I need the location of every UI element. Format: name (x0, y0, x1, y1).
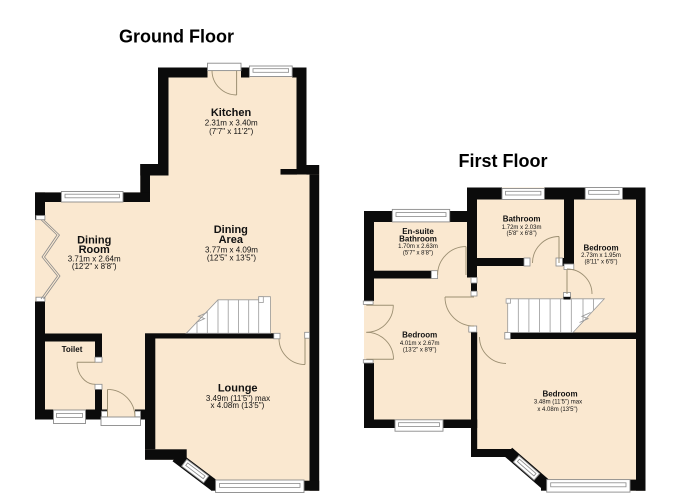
svg-text:Ground Floor: Ground Floor (119, 27, 234, 47)
svg-text:(5'8" x 6'8"): (5'8" x 6'8") (506, 231, 536, 237)
svg-text:Bathroom: Bathroom (503, 214, 541, 223)
svg-text:First Floor: First Floor (459, 151, 548, 171)
svg-text:Lounge: Lounge (218, 383, 258, 395)
svg-text:2.73m x 1.95m: 2.73m x 1.95m (581, 253, 621, 259)
svg-text:Bedroom: Bedroom (402, 330, 437, 339)
svg-text:3.48m (11'5") max: 3.48m (11'5") max (534, 399, 582, 405)
svg-text:(12'5" x 13'5"): (12'5" x 13'5") (207, 254, 257, 263)
svg-text:Bedroom: Bedroom (542, 390, 577, 399)
svg-text:Toilet: Toilet (62, 345, 83, 354)
svg-text:(12'2" x 8'8"): (12'2" x 8'8") (72, 262, 117, 271)
svg-text:Bathroom: Bathroom (399, 235, 437, 244)
svg-text:1.70m x 2.63m: 1.70m x 2.63m (398, 244, 438, 250)
svg-text:x 4.08m (13'5"): x 4.08m (13'5") (211, 401, 265, 410)
svg-text:1.72m x 2.03m: 1.72m x 2.03m (502, 225, 542, 231)
svg-text:(13'2" x 8'9"): (13'2" x 8'9") (403, 347, 437, 353)
svg-text:Kitchen: Kitchen (211, 107, 252, 119)
svg-text:(5'7" x 8'8"): (5'7" x 8'8") (403, 251, 433, 257)
svg-text:Area: Area (219, 234, 244, 246)
svg-text:Bedroom: Bedroom (583, 244, 618, 253)
svg-text:x 4.08m (13'5"): x 4.08m (13'5") (537, 407, 577, 413)
svg-text:4.01m x 2.67m: 4.01m x 2.67m (400, 341, 440, 347)
svg-text:(7'7" x 11'2"): (7'7" x 11'2") (209, 127, 253, 136)
svg-text:(8'11" x 6'5"): (8'11" x 6'5") (584, 260, 617, 266)
